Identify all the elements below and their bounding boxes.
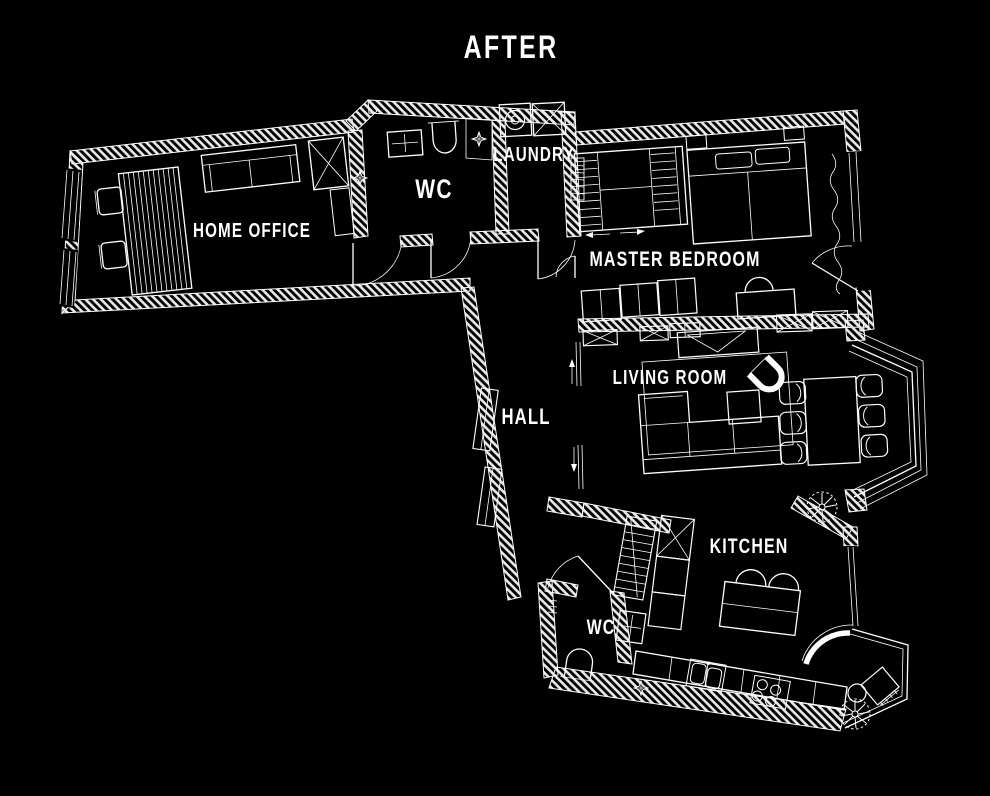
room-label-home-office: HOME OFFICE bbox=[193, 219, 311, 242]
floor-plan-page: AFTER HOME OFFICE WC LAUNDRY MASTER BEDR… bbox=[0, 0, 990, 796]
room-label-wc-top: WC bbox=[415, 175, 452, 205]
room-label-wc-bottom: WC bbox=[587, 615, 616, 639]
floor-plan-canvas: AFTER HOME OFFICE WC LAUNDRY MASTER BEDR… bbox=[0, 0, 990, 796]
room-label-living-room: LIVING ROOM bbox=[613, 366, 728, 389]
page-title: AFTER bbox=[464, 30, 559, 66]
room-label-hall: HALL bbox=[501, 405, 550, 430]
room-label-kitchen: KITCHEN bbox=[710, 534, 789, 558]
room-label-laundry: LAUNDRY bbox=[493, 143, 575, 166]
room-label-master-bedroom: MASTER BEDROOM bbox=[589, 247, 760, 271]
